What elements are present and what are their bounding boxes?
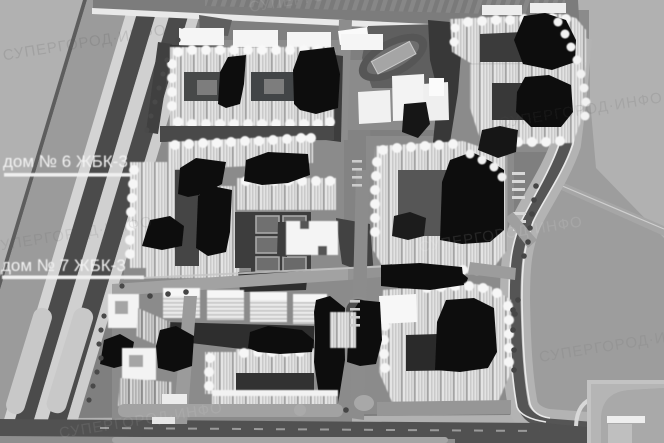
svg-text:дом № 6 ЖБК-3: дом № 6 ЖБК-3 (3, 152, 128, 171)
svg-text:дом № 7 ЖБК-3: дом № 7 ЖБК-3 (1, 256, 126, 275)
